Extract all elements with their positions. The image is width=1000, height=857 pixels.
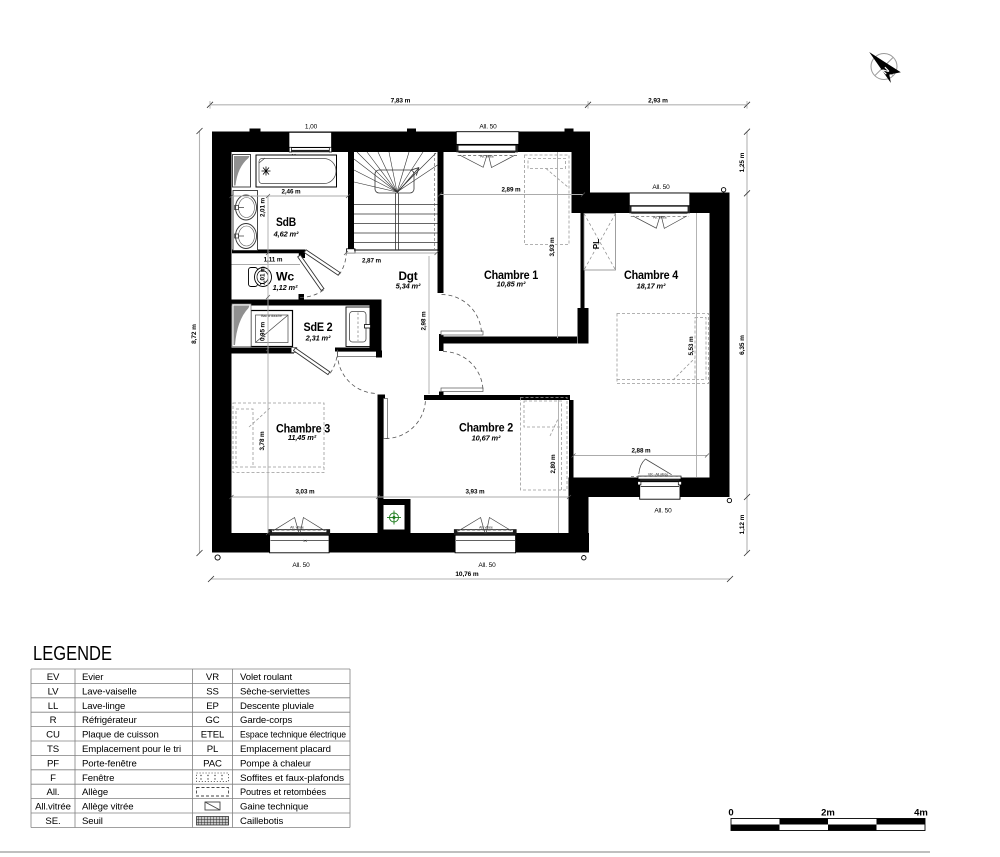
svg-text:5,34 m²: 5,34 m² bbox=[396, 282, 421, 291]
svg-text:All. 50: All. 50 bbox=[292, 562, 310, 569]
svg-text:3,78 m: 3,78 m bbox=[259, 431, 266, 451]
svg-text:0: 0 bbox=[728, 808, 733, 819]
svg-text:All. vitrée: All. vitrée bbox=[480, 155, 494, 159]
svg-text:SdB: SdB bbox=[276, 217, 296, 229]
svg-text:PF: PF bbox=[47, 758, 59, 769]
svg-text:LV: LV bbox=[48, 686, 60, 697]
svg-text:ETEL: ETEL bbox=[201, 730, 225, 741]
svg-text:Descente pluviale: Descente pluviale bbox=[240, 701, 314, 712]
svg-text:All.vitrée: All.vitrée bbox=[35, 802, 71, 813]
svg-text:All. vitrée: All. vitrée bbox=[290, 526, 304, 530]
svg-text:TS: TS bbox=[47, 744, 59, 755]
svg-text:CU: CU bbox=[46, 730, 60, 741]
svg-text:Bac à douche: Bac à douche bbox=[261, 314, 282, 318]
svg-text:All. 50: All. 50 bbox=[654, 508, 672, 515]
svg-text:10,85 m²: 10,85 m² bbox=[497, 279, 526, 288]
svg-text:Sèche-serviettes: Sèche-serviettes bbox=[240, 686, 310, 697]
svg-text:3,93 m: 3,93 m bbox=[549, 237, 556, 257]
svg-text:Emplacement pour le tri: Emplacement pour le tri bbox=[82, 744, 181, 755]
svg-text:18,17 m²: 18,17 m² bbox=[637, 281, 666, 290]
svg-text:3,93 m: 3,93 m bbox=[465, 489, 485, 496]
svg-text:2,46 m: 2,46 m bbox=[281, 189, 301, 196]
svg-text:All. vitrée: All. vitrée bbox=[479, 526, 493, 530]
svg-text:VR: VR bbox=[206, 672, 219, 683]
svg-text:11,45 m²: 11,45 m² bbox=[288, 433, 317, 442]
svg-text:2,93 m: 2,93 m bbox=[648, 98, 668, 105]
svg-text:3,03 m: 3,03 m bbox=[295, 489, 315, 496]
svg-text:VR - All.vitrée: VR - All.vitrée bbox=[648, 473, 668, 477]
svg-text:Emplacement placard: Emplacement placard bbox=[240, 744, 331, 755]
svg-text:Volet roulant: Volet roulant bbox=[240, 672, 292, 683]
svg-text:Gaine technique: Gaine technique bbox=[240, 802, 308, 813]
svg-text:SdE 2: SdE 2 bbox=[304, 322, 333, 334]
svg-text:Fenêtre: Fenêtre bbox=[82, 773, 114, 784]
svg-text:Seuil: Seuil bbox=[82, 816, 103, 827]
svg-text:2,98 m: 2,98 m bbox=[421, 311, 428, 331]
svg-text:Lave-linge: Lave-linge bbox=[82, 701, 125, 712]
svg-text:SE.: SE. bbox=[45, 816, 60, 827]
svg-text:Pompe à chaleur: Pompe à chaleur bbox=[240, 758, 312, 769]
svg-text:GC: GC bbox=[205, 715, 219, 726]
svg-text:6,35 m: 6,35 m bbox=[739, 335, 746, 355]
svg-text:All.: All. bbox=[47, 787, 60, 798]
svg-text:PL: PL bbox=[592, 239, 601, 249]
svg-text:2,87 m: 2,87 m bbox=[362, 258, 382, 265]
svg-text:Allège vitrée: Allège vitrée bbox=[82, 802, 134, 813]
svg-text:10,67 m²: 10,67 m² bbox=[472, 433, 501, 442]
svg-text:EV: EV bbox=[47, 672, 60, 683]
svg-text:10,76 m: 10,76 m bbox=[455, 571, 478, 578]
svg-text:Lave-vaiselle: Lave-vaiselle bbox=[82, 686, 137, 697]
svg-text:Soffites et faux-plafonds: Soffites et faux-plafonds bbox=[240, 773, 344, 784]
svg-text:4m: 4m bbox=[914, 808, 928, 819]
svg-text:LL: LL bbox=[48, 701, 59, 712]
svg-text:Plaque de cuisson: Plaque de cuisson bbox=[82, 730, 159, 741]
svg-text:1,11 m: 1,11 m bbox=[264, 257, 283, 264]
svg-text:Caillebotis: Caillebotis bbox=[240, 816, 283, 827]
svg-text:1,25 m: 1,25 m bbox=[739, 152, 746, 172]
svg-text:2m: 2m bbox=[821, 808, 835, 819]
svg-text:1,12 m²: 1,12 m² bbox=[273, 283, 298, 292]
svg-text:F: F bbox=[50, 773, 56, 784]
svg-text:Garde-corps: Garde-corps bbox=[240, 715, 293, 726]
svg-text:2,31 m²: 2,31 m² bbox=[305, 334, 331, 343]
svg-text:0,95 m: 0,95 m bbox=[260, 322, 267, 342]
svg-text:2,89 m: 2,89 m bbox=[501, 187, 521, 194]
svg-text:2,80 m: 2,80 m bbox=[550, 454, 557, 474]
svg-text:R: R bbox=[50, 715, 57, 726]
svg-text:1,00: 1,00 bbox=[305, 124, 318, 131]
svg-text:Poutres et retombées: Poutres et retombées bbox=[240, 787, 326, 798]
svg-text:All. vitrée: All. vitrée bbox=[653, 216, 667, 220]
svg-text:EP: EP bbox=[206, 701, 219, 712]
svg-text:Wc: Wc bbox=[276, 272, 295, 284]
svg-text:5,53 m: 5,53 m bbox=[688, 336, 695, 356]
svg-text:PAC: PAC bbox=[203, 758, 222, 769]
svg-text:Porte-fenêtre: Porte-fenêtre bbox=[82, 758, 137, 769]
svg-text:1,01 m: 1,01 m bbox=[260, 266, 267, 286]
svg-text:Evier: Evier bbox=[82, 672, 104, 683]
svg-text:2,01 m: 2,01 m bbox=[260, 198, 267, 218]
svg-text:LEGENDE: LEGENDE bbox=[33, 642, 112, 665]
svg-text:4,62 m²: 4,62 m² bbox=[273, 230, 299, 239]
svg-text:7,83 m: 7,83 m bbox=[391, 98, 411, 105]
svg-text:2,88 m: 2,88 m bbox=[631, 448, 651, 455]
svg-text:All. 50: All. 50 bbox=[479, 124, 497, 131]
svg-text:Réfrigérateur: Réfrigérateur bbox=[82, 715, 138, 726]
svg-text:1,12 m: 1,12 m bbox=[739, 514, 746, 534]
svg-text:All. 50: All. 50 bbox=[652, 184, 670, 191]
svg-text:PL: PL bbox=[207, 744, 219, 755]
svg-text:8,72 m: 8,72 m bbox=[191, 324, 198, 344]
svg-text:Allège: Allège bbox=[82, 787, 108, 798]
svg-text:SS: SS bbox=[206, 686, 219, 697]
svg-text:Chambre 4: Chambre 4 bbox=[624, 270, 679, 282]
svg-text:All. 50: All. 50 bbox=[478, 562, 496, 569]
svg-text:Espace technique électrique: Espace technique électrique bbox=[240, 730, 346, 741]
